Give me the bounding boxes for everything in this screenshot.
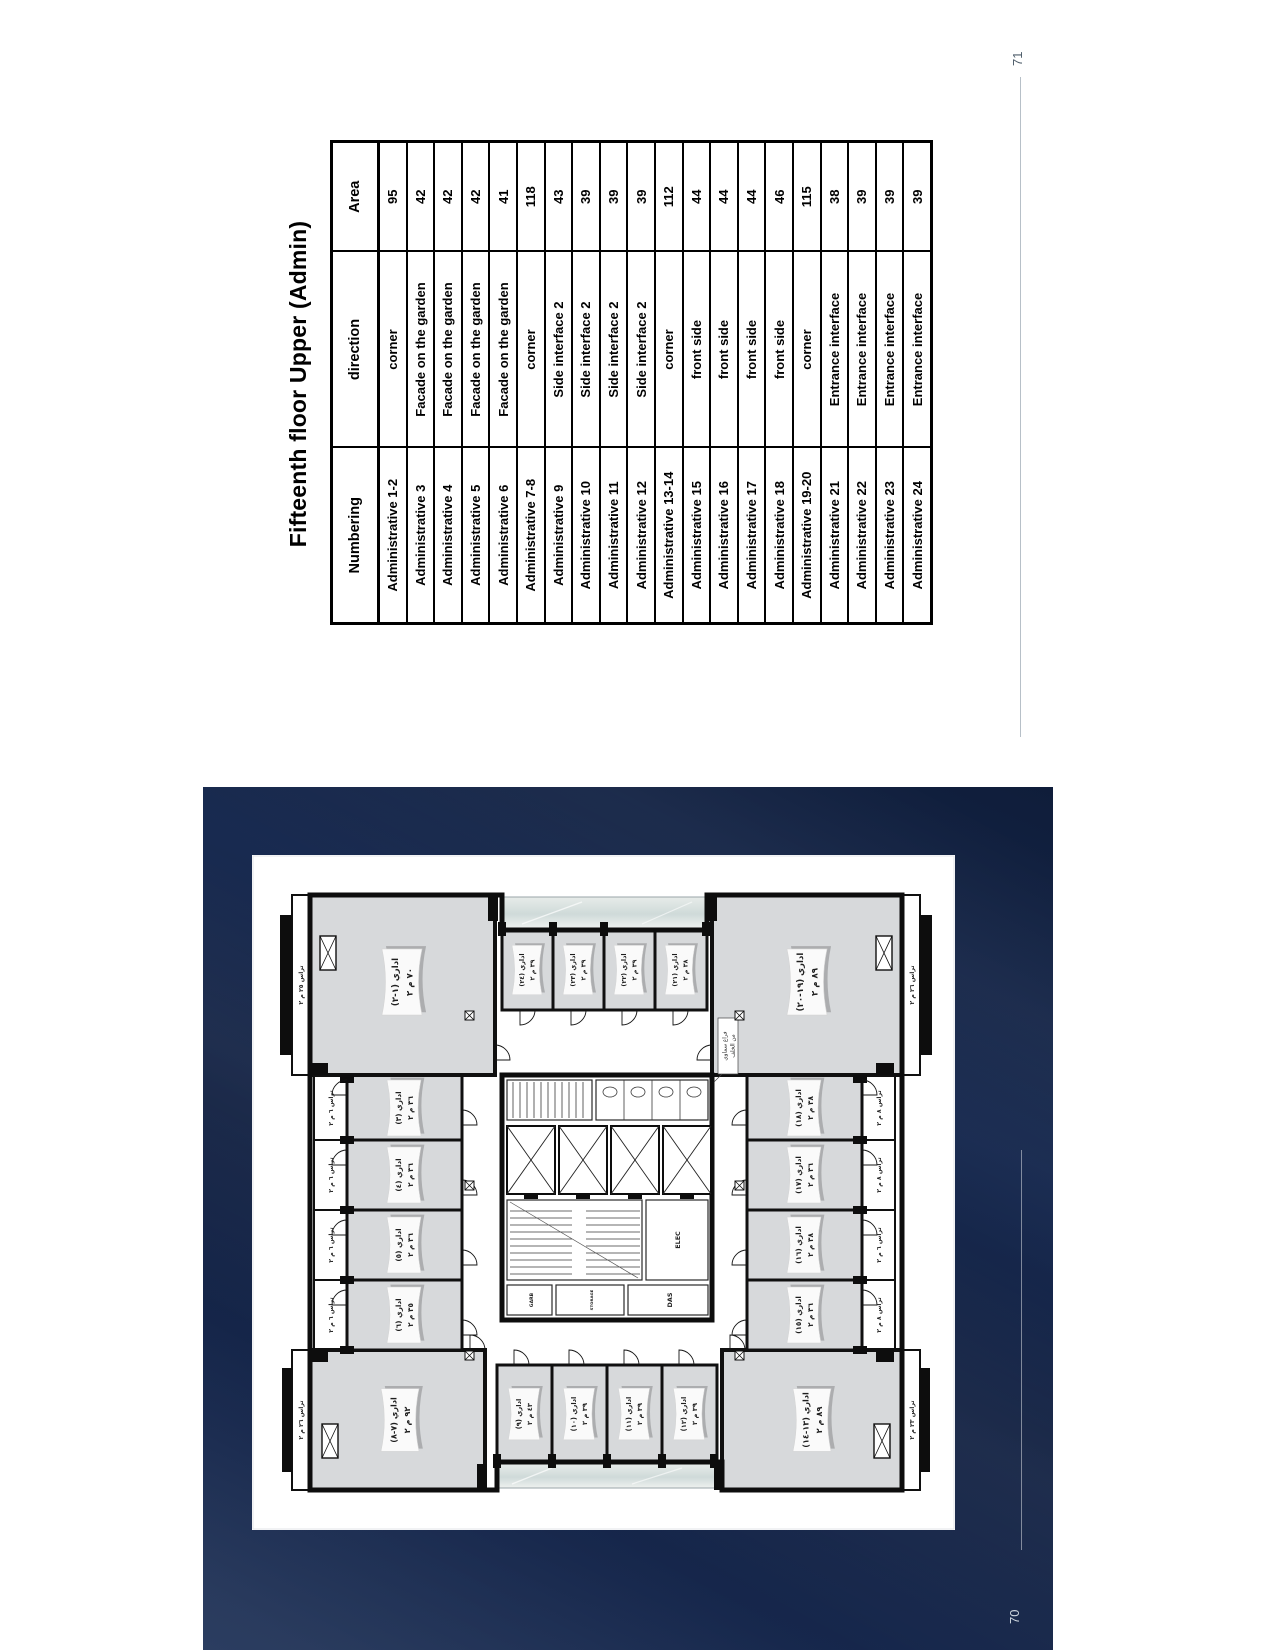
terrace-label: تراس ٢٦ م ٢ [298, 1400, 305, 1439]
terrace-label: تراس ٦ م ٢ [328, 1297, 335, 1332]
table-cell: corner [517, 252, 545, 448]
room-banner: اداري (١-٢)٧٠ م ٢ [382, 946, 426, 1015]
room-label: اداري (٥) [394, 1228, 403, 1261]
table-cell: Administrative 5 [462, 448, 490, 624]
table-cell: Administrative 17 [738, 448, 766, 624]
table-cell: Administrative 12 [627, 448, 655, 624]
room-banner: اداري (١٢)٣٩ م ٢ [673, 1386, 707, 1440]
room-banner: اداري (١١)٣٩ م ٢ [618, 1386, 652, 1440]
room-banner: اداري (٥)٣٦ م ٢ [387, 1215, 424, 1273]
table-row: Administrative 6Facade on the garden41 [489, 142, 517, 624]
room-area: ٧٠ م ٢ [405, 968, 415, 996]
table-cell: corner [379, 252, 407, 448]
room-banner: اداري (١٠)٣٩ م ٢ [563, 1386, 597, 1440]
room-banner: اداري (١٩-٢٠)٨٩ م ٢ [787, 946, 831, 1015]
page-70-floor-plan: GARB STORAGE DAS ELEC فراغ سماوي من الخل… [203, 787, 1053, 1650]
table-cell: 44 [738, 142, 766, 252]
table-row: Administrative 4Facade on the garden42 [434, 142, 462, 624]
table-cell: Side interface 2 [545, 252, 573, 448]
table-row: Administrative 17front side44 [738, 142, 766, 624]
room-label: اداري (١١) [625, 1397, 633, 1432]
table-cell: Entrance interface [903, 252, 931, 448]
room-area: ٣٩ م ٢ [631, 959, 639, 980]
table-cell: Side interface 2 [572, 252, 600, 448]
table-cell: Administrative 9 [545, 448, 573, 624]
table-cell: Administrative 15 [683, 448, 711, 624]
table-cell: Facade on the garden [434, 252, 462, 448]
table-cell: 42 [434, 142, 462, 252]
table-cell: 42 [407, 142, 435, 252]
room-banner: اداري (٧-٨)٩٢ م ٢ [381, 1386, 423, 1451]
room-banner: اداري (١٥)٣٦ م ٢ [787, 1285, 824, 1343]
table-cell: 39 [903, 142, 931, 252]
table-row: Administrative 5Facade on the garden42 [462, 142, 490, 624]
table-cell: 38 [821, 142, 849, 252]
table-cell: Side interface 2 [627, 252, 655, 448]
room-banner: اداري (١٣-١٤)٨٩ م ٢ [793, 1386, 835, 1451]
room-label: اداري (٢٢) [620, 953, 628, 986]
terrace-label: تراس ٦ م ٢ [328, 1157, 335, 1192]
table-cell: 44 [683, 142, 711, 252]
table-row: Administrative 13-14corner112 [655, 142, 683, 624]
table-row: Administrative 12Side interface 239 [627, 142, 655, 624]
table-row: Administrative 10Side interface 239 [572, 142, 600, 624]
header-numbering: Numbering [332, 448, 379, 624]
table-cell: Entrance interface [848, 252, 876, 448]
table-cell: Entrance interface [821, 252, 849, 448]
table-row: Administrative 11Side interface 239 [600, 142, 628, 624]
storage-room-label: STORAGE [589, 1289, 594, 1310]
table-cell: Administrative 24 [903, 448, 931, 624]
room-area: ٨٩ م ٢ [814, 1407, 825, 1434]
footer-rule-70 [1021, 1150, 1022, 1550]
terrace-label: تراس ٦ م ٢ [328, 1227, 335, 1262]
table-cell: 95 [379, 142, 407, 252]
terrace-label: تراس ٦ م ٢ [328, 1090, 335, 1125]
table-cell: front side [738, 252, 766, 448]
room-label: اداري (١٣-١٤) [800, 1392, 811, 1448]
table-row: Administrative 19-20corner115 [793, 142, 821, 624]
table-row: Administrative 16front side44 [710, 142, 738, 624]
header-area: Area [332, 142, 379, 252]
table-cell: Facade on the garden [462, 252, 490, 448]
room-label: اداري (٣) [394, 1091, 403, 1124]
room-banner: اداري (٤)٣٦ م ٢ [387, 1145, 424, 1203]
table-cell: front side [683, 252, 711, 448]
room-label: اداري (٩) [515, 1399, 523, 1430]
table-cell: Administrative 13-14 [655, 448, 683, 624]
room-banner: اداري (٢١)٣٨ م ٢ [665, 943, 698, 994]
table-cell: front side [765, 252, 793, 448]
room-area: ٣٦ م ٢ [806, 1303, 815, 1327]
room-banner: اداري (١٨)٣٨ م ٢ [787, 1078, 824, 1136]
room-area: ٣٩ م ٢ [581, 1403, 589, 1425]
table-row: Administrative 23Entrance interface39 [876, 142, 904, 624]
terrace-label: تراس ٢٥ م ٢ [298, 965, 305, 1004]
table-cell: Side interface 2 [600, 252, 628, 448]
table-header-row: Numbering direction Area [332, 142, 379, 624]
room-area: ٣٦ م ٢ [406, 1096, 415, 1120]
terrace-label: تراس ٢٦ م ٢ [909, 965, 916, 1004]
room-label: اداري (١-٢) [391, 958, 401, 1006]
room-area: ٣٦ م ٢ [406, 1233, 415, 1257]
room-label: اداري (٦) [394, 1298, 403, 1331]
terrace-label: تراس ٢٣ م ٢ [909, 1400, 916, 1439]
room-area: ٣٥ م ٢ [406, 1303, 415, 1327]
room-banner: اداري (١٧)٣٦ م ٢ [787, 1145, 824, 1203]
table-cell: 39 [848, 142, 876, 252]
table-cell: Administrative 7-8 [517, 448, 545, 624]
room-label: اداري (١٧) [794, 1156, 803, 1194]
table-cell: corner [793, 252, 821, 448]
table-cell: 118 [517, 142, 545, 252]
room-label: اداري (٢٤) [518, 953, 526, 986]
table-row: Administrative 3Facade on the garden42 [407, 142, 435, 624]
garbage-room-label: GARB [529, 1292, 535, 1307]
room-banner: اداري (٦)٣٥ م ٢ [387, 1285, 424, 1343]
room-label: اداري (٢٣) [569, 953, 577, 986]
room-label: اداري (١٨) [794, 1089, 803, 1127]
table-cell: Administrative 10 [572, 448, 600, 624]
table-cell: Administrative 22 [848, 448, 876, 624]
room-banner: اداري (١٦)٣٨ م ٢ [787, 1215, 824, 1273]
room-label: اداري (٧-٨) [388, 1397, 399, 1443]
room-area: ٣٩ م ٢ [529, 959, 537, 980]
room-label: اداري (٤) [394, 1158, 403, 1191]
units-table: Numbering direction Area Administrative … [330, 140, 933, 625]
page-number-70: 70 [1007, 1610, 1022, 1624]
room-banner: اداري (٣)٣٦ م ٢ [387, 1078, 424, 1136]
room-label: اداري (١٦) [794, 1226, 803, 1264]
room-label: اداري (٢١) [671, 953, 679, 986]
table-row: Administrative 22Entrance interface39 [848, 142, 876, 624]
table-cell: 39 [876, 142, 904, 252]
table-cell: 44 [710, 142, 738, 252]
svg-text:فراغ سماوي: فراغ سماوي [723, 1031, 729, 1060]
terrace-label: تراس ٨ م ٢ [876, 1157, 883, 1192]
terrace-label: تراس ٨ م ٢ [876, 1297, 883, 1332]
room-area: ٣٩ م ٢ [580, 959, 588, 980]
table-cell: 39 [572, 142, 600, 252]
table-row: Administrative 9Side interface 243 [545, 142, 573, 624]
room-label: اداري (١٠) [570, 1397, 578, 1432]
table-cell: 46 [765, 142, 793, 252]
table-cell: Facade on the garden [489, 252, 517, 448]
table-cell: 42 [462, 142, 490, 252]
table-cell: Administrative 6 [489, 448, 517, 624]
table-row: Administrative 1-2corner95 [379, 142, 407, 624]
room-banner: اداري (٢٢)٣٩ م ٢ [614, 943, 647, 994]
table-cell: Administrative 4 [434, 448, 462, 624]
table-cell: 39 [627, 142, 655, 252]
room-area: ٣٨ م ٢ [806, 1096, 815, 1120]
table-cell: 41 [489, 142, 517, 252]
room-label: اداري (١٥) [794, 1296, 803, 1334]
table-cell: 43 [545, 142, 573, 252]
table-cell: Administrative 16 [710, 448, 738, 624]
room-banner: اداري (٢٣)٣٩ م ٢ [563, 943, 596, 994]
room-area: ٣٦ م ٢ [406, 1163, 415, 1187]
table-row: Administrative 21Entrance interface38 [821, 142, 849, 624]
table-cell: Administrative 18 [765, 448, 793, 624]
room-area: ٤٣ م ٢ [526, 1403, 534, 1425]
room-area: ٩٢ م ٢ [402, 1407, 413, 1434]
table-cell: Administrative 21 [821, 448, 849, 624]
room-area: ٣٦ م ٢ [806, 1163, 815, 1187]
room-area: ٣٨ م ٢ [682, 959, 690, 980]
table-row: Administrative 7-8corner118 [517, 142, 545, 624]
table-cell: corner [655, 252, 683, 448]
table-row: Administrative 24Entrance interface39 [903, 142, 931, 624]
terrace-label: تراس ٦ م ٢ [876, 1227, 883, 1262]
table-cell: Administrative 19-20 [793, 448, 821, 624]
header-direction: direction [332, 252, 379, 448]
room-area: ٣٨ م ٢ [806, 1233, 815, 1257]
table-cell: 115 [793, 142, 821, 252]
table-cell: Facade on the garden [407, 252, 435, 448]
two-page-spread: GARB STORAGE DAS ELEC فراغ سماوي من الخل… [0, 0, 1275, 1650]
footer-rule-71 [1020, 77, 1021, 737]
floor-plan-drawing: GARB STORAGE DAS ELEC فراغ سماوي من الخل… [252, 855, 955, 1530]
table-cell: Entrance interface [876, 252, 904, 448]
room-label: اداري (١٩-٢٠) [796, 953, 806, 1012]
terrace-label: تراس ٨ م ٢ [876, 1090, 883, 1125]
elec-room-label: ELEC [674, 1231, 682, 1249]
table-cell: front side [710, 252, 738, 448]
svg-text:من الخلف: من الخلف [731, 1034, 737, 1058]
table-row: Administrative 18front side46 [765, 142, 793, 624]
table-cell: 112 [655, 142, 683, 252]
table-row: Administrative 15front side44 [683, 142, 711, 624]
floor-plan-panel: GARB STORAGE DAS ELEC فراغ سماوي من الخل… [252, 855, 955, 1530]
room-area: ٣٩ م ٢ [691, 1403, 699, 1425]
room-area: ٨٩ م ٢ [810, 967, 820, 996]
table-cell: Administrative 11 [600, 448, 628, 624]
table-cell: Administrative 23 [876, 448, 904, 624]
table-cell: Administrative 1-2 [379, 448, 407, 624]
room-label: اداري (١٢) [680, 1397, 688, 1432]
table-cell: 39 [600, 142, 628, 252]
table-cell: Administrative 3 [407, 448, 435, 624]
page-number-71: 71 [1010, 52, 1025, 66]
room-banner: اداري (٢٤)٣٩ م ٢ [512, 943, 545, 994]
room-banner: اداري (٩)٤٣ م ٢ [508, 1386, 542, 1440]
room-area: ٣٩ م ٢ [636, 1403, 644, 1425]
page-title: Fifteenth floor Upper (Admin) [285, 136, 312, 632]
das-room-label: DAS [666, 1292, 674, 1307]
